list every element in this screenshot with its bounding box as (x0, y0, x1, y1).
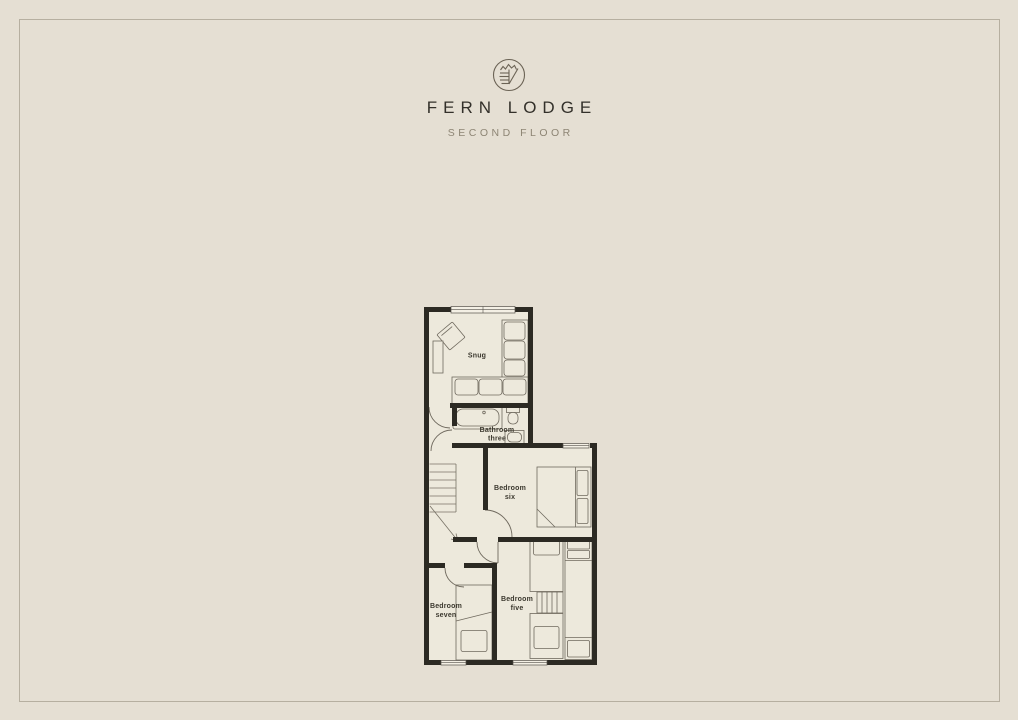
single-bed-3 (456, 585, 492, 660)
snug-window (451, 307, 515, 314)
bedroom-six-window (563, 444, 589, 449)
room-label-snug: Snug (468, 353, 486, 360)
room-label-bedroom-five-2: five (511, 605, 524, 612)
single-bed-1 (530, 539, 563, 592)
double-bed (537, 467, 591, 527)
chest-of-drawers (537, 592, 563, 613)
single-bed-2 (530, 614, 563, 659)
bedroom-five-window (513, 661, 547, 666)
room-label-bathroom-three-1: Bathroom (480, 427, 515, 434)
bedroom-seven-window (441, 661, 466, 666)
room-label-bedroom-five-1: Bedroom (501, 596, 533, 603)
wardrobe-bed-unit (565, 539, 592, 660)
toilet (507, 407, 520, 424)
room-label-bedroom-seven-2: seven (436, 612, 457, 619)
shelf (433, 341, 443, 373)
room-label-bathroom-three-2: three (488, 436, 506, 443)
room-label-bedroom-six-2: six (505, 494, 515, 501)
room-label-bedroom-seven-1: Bedroom (430, 603, 462, 610)
floor-plan: Snug Bathroom three Bedroom six Bedroom … (0, 0, 1018, 720)
bathtub (453, 406, 502, 429)
room-label-bedroom-six-1: Bedroom (494, 485, 526, 492)
